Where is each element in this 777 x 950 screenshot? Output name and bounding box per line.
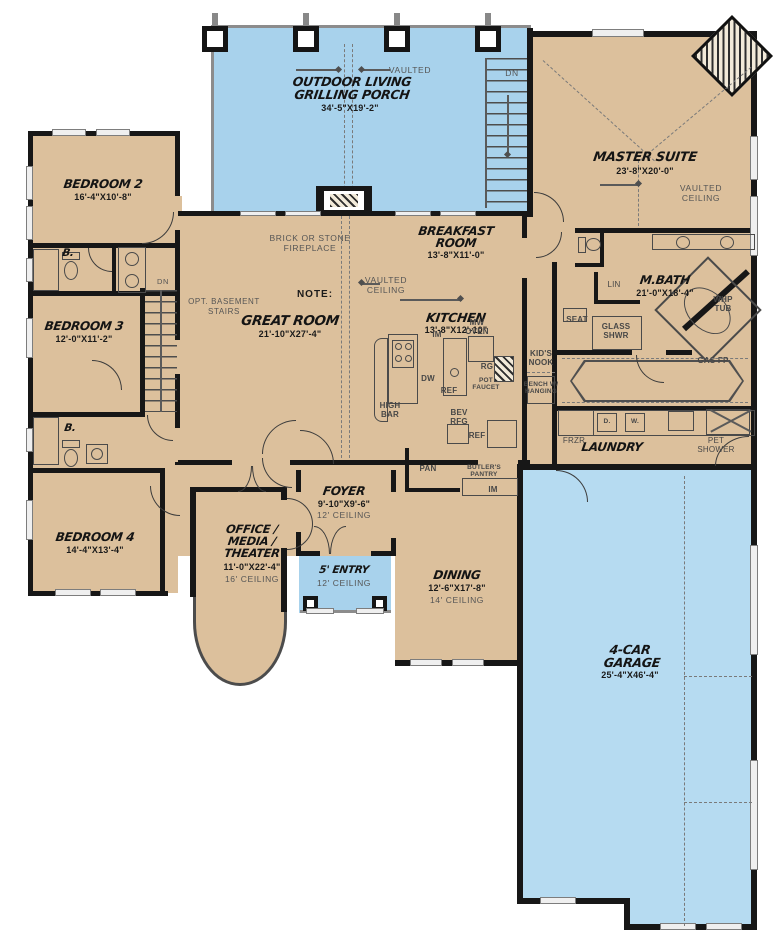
beverage-fridge [447, 424, 469, 444]
column-cap [394, 13, 400, 26]
refrigerator [487, 420, 517, 448]
room-label-bedroom-3: BEDROOM 3 [44, 319, 125, 333]
dim-arrow [296, 69, 340, 71]
sink [91, 448, 103, 460]
room-dims-office: 11'-0"X22'-4" [224, 562, 281, 572]
window [452, 659, 484, 666]
label-washer: W. [631, 418, 639, 425]
label-dw: DW [421, 374, 435, 383]
window [96, 129, 130, 136]
label-ref-island: REF [441, 386, 458, 395]
wall-segment [575, 263, 604, 267]
note-bench-hanging: BENCH W/ HANGING [524, 381, 558, 396]
label-glass-shwr: GLASS SHWR [602, 322, 631, 340]
wall-segment [517, 470, 523, 904]
sink [125, 252, 139, 266]
right-wing-floor [530, 31, 757, 470]
wall-segment [552, 350, 692, 355]
garage-bay-line [684, 802, 752, 803]
vanity [652, 234, 755, 250]
porch-column [293, 26, 319, 52]
room-dims-mbath: 21'-0"X18'-4" [636, 288, 693, 298]
dim-arrow [600, 184, 640, 186]
porch-column [202, 26, 228, 52]
nook-hanging [527, 372, 555, 373]
window [540, 897, 576, 904]
room-dims-bedroom-2: 16'-4"X10'-8" [74, 192, 131, 202]
sink [720, 236, 734, 249]
room-dims-dining: 12'-6"X17'-8" [428, 583, 485, 593]
room-dims-outdoor-living: 34'-5"X19'-2" [321, 103, 378, 113]
window [592, 29, 644, 37]
toilet-tank [62, 440, 80, 448]
label-lin: LIN [607, 280, 620, 289]
room-label-laundry: LAUNDRY [581, 440, 644, 454]
window [55, 589, 91, 596]
fireplace-hatch [330, 194, 358, 207]
label-pot-faucet: POT FAUCET [472, 377, 499, 392]
wall-segment [112, 247, 116, 291]
label-frzr: FRZR [563, 436, 585, 445]
window [26, 258, 33, 282]
room-label-kids-nook: KID'S NOOK [529, 349, 554, 367]
window [26, 428, 33, 452]
burner [395, 343, 402, 350]
bathtub [33, 417, 59, 465]
laundry-sink [668, 411, 694, 431]
label-ref-2: REF [469, 431, 486, 440]
label-seat: SEAT [566, 315, 588, 324]
wall-segment [28, 591, 168, 596]
window [26, 318, 33, 358]
sink [676, 236, 690, 249]
wall-segment [405, 448, 409, 492]
porch-column [475, 26, 501, 52]
label-rg: RG [481, 362, 493, 371]
room-label-breakfast: ROOM [435, 236, 477, 250]
label-bev-rfg: BEV RFG [450, 408, 468, 426]
label-vaulted-porch: VAULTED [389, 65, 431, 75]
room-dims-bedroom-4: 14'-4"X13'-4" [66, 545, 123, 555]
window [440, 211, 476, 216]
sink [125, 274, 139, 288]
label-note: NOTE: [297, 289, 333, 300]
window [750, 136, 758, 180]
room-dims-master-suite: 23'-8"X20'-0" [616, 166, 673, 176]
label-butlers-pantry: BUTLER'S PANTRY [467, 464, 501, 479]
door-gap [173, 428, 182, 462]
label-dn-basement: DN [157, 277, 169, 286]
label-vaulted-kitchen: VAULTED CEILING [365, 275, 407, 295]
column-cap [212, 13, 218, 26]
dim-arrow [362, 69, 390, 71]
garage-floor [517, 470, 757, 930]
room-label-master-suite: MASTER SUITE [592, 150, 698, 165]
room-dims-great-room: 21'-10"X27'-4" [259, 329, 322, 339]
window [356, 608, 384, 614]
room-label-mbath: M.BATH [639, 273, 691, 287]
label-im-1: IM [432, 330, 441, 339]
room-label-office: THEATER [223, 546, 281, 560]
porch-centerline [344, 44, 345, 204]
window [410, 659, 442, 666]
burner [405, 343, 412, 350]
ceiling-note-office: 16' CEILING [225, 574, 279, 584]
porch-centerline [352, 44, 353, 204]
label-fireplace: BRICK OR STONE FIREPLACE [270, 233, 351, 253]
wall-segment [405, 488, 460, 492]
room-dims-bedroom-3: 12'-0"X11'-2" [56, 334, 113, 344]
label-dryer: D. [604, 418, 611, 425]
window [100, 589, 136, 596]
door-gap [520, 238, 529, 278]
wall-oven [468, 336, 494, 362]
porch-beam [211, 25, 214, 215]
room-dims-breakfast: 13'-8"X11'-0" [428, 250, 485, 260]
garage-door-opening [750, 760, 758, 870]
stair-centerline [160, 290, 162, 412]
window [26, 166, 33, 200]
label-gas-fp: GAS FP [698, 356, 729, 365]
window [52, 129, 86, 136]
label-mw-oven: MW OVEN [465, 318, 488, 336]
stair-rail [485, 58, 487, 208]
bathtub [33, 249, 59, 291]
label-opt-basement: OPT. BASEMENT STAIRS [188, 297, 260, 316]
label-pet-shower: PET SHOWER [697, 436, 734, 454]
column-cap [303, 13, 309, 26]
office-bay-floor [193, 592, 287, 686]
window [306, 608, 334, 614]
label-high-bar: HIGH BAR [380, 401, 401, 419]
room-dims-foyer: 9'-10"X9'-6" [318, 499, 370, 509]
label-pan: PAN [420, 464, 437, 473]
burner [395, 355, 402, 362]
burner [405, 355, 412, 362]
room-dims-garage: 25'-4"X46'-4" [601, 670, 658, 680]
room-label-foyer: FOYER [322, 484, 366, 498]
ceiling-note-foyer: 12' CEILING [317, 510, 371, 520]
toilet-bowl [64, 261, 78, 280]
label-dn-porch: DN [505, 68, 518, 78]
window [706, 923, 742, 930]
room-label-bedroom-4: BEDROOM 4 [55, 530, 136, 544]
toilet-tank [578, 237, 586, 253]
ceiling-note-dining: 14' CEILING [430, 595, 484, 605]
toilet-bowl [64, 449, 78, 467]
room-label-bedroom-2: BEDROOM 2 [63, 177, 144, 191]
wall-segment [28, 468, 165, 473]
wall-segment [190, 487, 196, 597]
room-label-garage: GARAGE [603, 655, 661, 670]
window [660, 923, 696, 930]
island-faucet [450, 368, 459, 377]
label-whp-tub: WHP TUB [713, 295, 732, 313]
column-cap [485, 13, 491, 26]
window [240, 211, 276, 216]
garage-bay-line [684, 476, 685, 926]
garage-bay-line [684, 676, 752, 677]
toilet-bowl [586, 238, 601, 251]
wall-segment [371, 551, 396, 556]
ceiling-note-entry: 12' CEILING [317, 578, 371, 588]
porch-column [384, 26, 410, 52]
label-im-2: IM [488, 485, 497, 494]
hanging-rod [562, 402, 748, 403]
label-bath-3: B. [63, 422, 76, 434]
room-label-outdoor-living: GRILLING PORCH [293, 87, 410, 102]
wall-segment [600, 233, 604, 267]
ceiling-note-master: VAULTED CEILING [680, 183, 722, 203]
freezer [558, 410, 594, 436]
room-label-dining: DINING [433, 568, 482, 582]
wall-segment [527, 28, 533, 217]
garage-door-opening [750, 545, 758, 655]
window [26, 206, 33, 240]
wall-segment [594, 300, 640, 304]
room-label-entry: 5' ENTRY [318, 564, 369, 576]
stair-arrow [507, 95, 509, 155]
door-gap [389, 492, 398, 538]
label-bath-2: B. [61, 247, 74, 259]
floor-plan: OUTDOOR LIVING GRILLING PORCH 34'-5"X19'… [0, 0, 777, 950]
dim-arrow [400, 299, 462, 301]
window [285, 211, 321, 216]
window [26, 500, 33, 540]
window [395, 211, 431, 216]
